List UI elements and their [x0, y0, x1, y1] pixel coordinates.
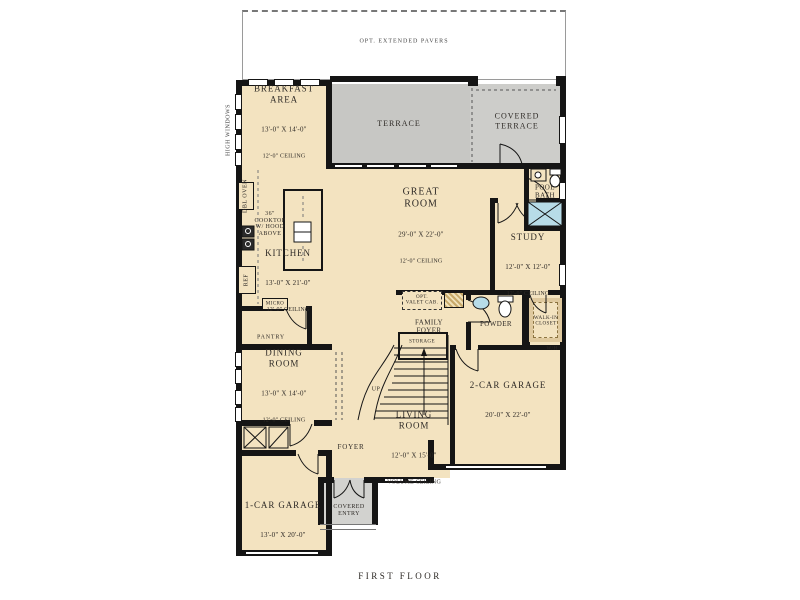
dining-bottom-wall-b [314, 420, 332, 426]
room-name: DINING ROOM [261, 348, 306, 370]
dining-window-1 [235, 352, 242, 367]
entry-step-1 [320, 524, 376, 525]
dining-window-3 [235, 390, 242, 405]
high-window-2 [235, 114, 242, 130]
room-name: 1-CAR GARAGE [245, 500, 322, 511]
room-dims: 13'-0" X 21'-0" [265, 279, 311, 287]
bench [444, 292, 464, 308]
high-windows-label: HIGH WINDOWS [225, 104, 232, 156]
breakfast-terrace-divider-wall [326, 80, 332, 168]
room-ceiling: 12'-0" CEILING [398, 258, 443, 265]
room-name: 2-CAR GARAGE [470, 380, 547, 391]
high-window-4 [235, 152, 242, 166]
refrigerator-label: REF [243, 274, 250, 287]
room-dims: 13'-0" X 14'-0" [254, 126, 314, 134]
powder-left-wall-a [466, 295, 471, 300]
room-dims: 13'-0" X 14'-0" [261, 390, 306, 398]
high-window-1 [235, 94, 242, 110]
pool-bath-window [559, 182, 566, 200]
terrace-top-wall [330, 76, 470, 82]
room-name: STUDY [505, 232, 550, 243]
dining-window-4 [235, 407, 242, 422]
pavers-label: OPT. EXTENDED PAVERS [359, 38, 448, 45]
covered-terrace-window [559, 116, 566, 144]
floor-plan: OPT. EXTENDED PAVERS [0, 0, 800, 600]
room-ceiling: 12'-0" CEILING [505, 291, 550, 298]
room-label-study: STUDY 12'-0" X 12'-0" 12'-0" CEILING [505, 213, 550, 317]
storage-label: STORAGE [409, 339, 435, 345]
slider-panel-1 [334, 164, 363, 168]
room-dims: 29'-0" X 22'-0" [398, 231, 443, 239]
double-oven-label: DBL OVEN [242, 179, 249, 213]
one-car-garage-right-wall [326, 450, 332, 556]
room-dims: 13'-0" X 20'-0" [245, 531, 322, 539]
room-dims: 12'-0" X 12'-0" [505, 263, 550, 271]
slider-panel-2 [366, 164, 395, 168]
room-label-living: LIVING ROOM 12'-0" X 15'-0" VOLUME CEILI… [387, 391, 441, 506]
pool-bath-label: POOL BATH [535, 184, 555, 201]
room-ceiling: VOLUME CEILING [387, 479, 441, 486]
room-label-kitchen: KITCHEN 13'-0" X 21'-0" 12'-0" CEILING [265, 229, 311, 333]
study-left-wall [490, 198, 495, 295]
room-dims: 12'-0" X 15'-0" [387, 452, 441, 460]
water-heater-label: W/H [547, 346, 558, 352]
powder-left-wall-b [466, 322, 471, 350]
plan-title: FIRST FLOOR [358, 571, 442, 581]
powder-label: POWDER [480, 320, 512, 328]
laundry-bottom-wall-a [236, 450, 296, 456]
opt-valet-label: OPT. VALET CAB. [406, 294, 438, 305]
room-label-dining: DINING ROOM 13'-0" X 14'-0" 12'-0" CEILI… [261, 329, 306, 444]
two-car-garage-door [446, 465, 546, 469]
room-ceiling: 12'-0" CEILING [261, 417, 306, 424]
walk-in-closet-label: WALK-IN CLOSET [534, 315, 558, 326]
terrace-label: TERRACE [377, 119, 420, 129]
garage-left-wall [450, 345, 455, 470]
room-label-two-car-garage: 2-CAR GARAGE 20'-0" X 22'-0" [470, 361, 547, 439]
room-dims: 20'-0" X 22'-0" [470, 411, 547, 419]
entry-step-2 [320, 529, 376, 530]
covered-entry-label: COVERED ENTRY [333, 504, 364, 518]
covered-terrace-post-left [468, 76, 478, 86]
room-name: KITCHEN [265, 248, 311, 259]
covered-terrace-label: COVERED TERRACE [495, 111, 540, 130]
room-name: GREAT ROOM [398, 187, 443, 211]
room-label-one-car-garage: 1-CAR GARAGE 13'-0" X 20'-0" [245, 481, 322, 559]
family-foyer-label: FAMILY FOYER [415, 319, 443, 336]
up-label: UP [372, 386, 380, 393]
room-label-breakfast: BREAKFAST AREA 13'-0" X 14'-0" 12'-0" CE… [254, 65, 314, 180]
entry-stub-right [364, 477, 378, 483]
high-window-3 [235, 134, 242, 150]
room-name: BREAKFAST AREA [254, 84, 314, 106]
study-window [559, 264, 566, 286]
foyer-label: FOYER [338, 443, 365, 451]
room-ceiling: 12'-0" CEILING [254, 153, 314, 160]
room-label-great-room: GREAT ROOM 29'-0" X 22'-0" 12'-0" CEILIN… [398, 167, 443, 284]
storage-closet-walls [398, 332, 448, 360]
room-name: LIVING ROOM [387, 410, 441, 432]
dining-window-2 [235, 369, 242, 384]
covered-entry-right-wall [372, 477, 378, 525]
room-ceiling: 12'-0" CEILING [265, 307, 311, 314]
